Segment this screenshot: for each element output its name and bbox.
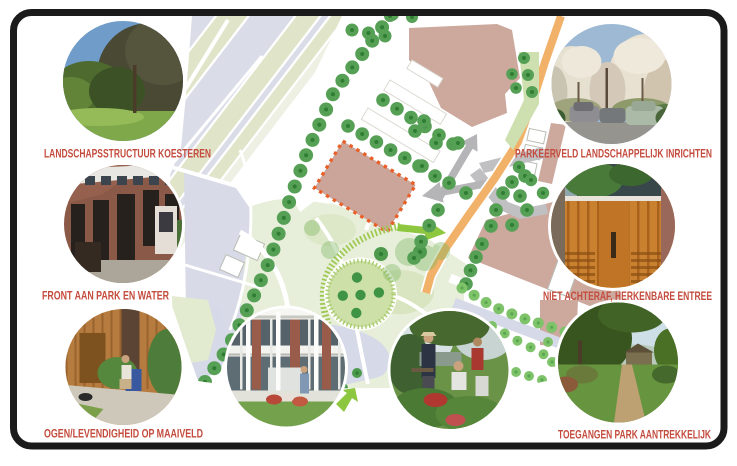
svg-text:NIET ACHTERAF, HERKENBARE ENTR: NIET ACHTERAF, HERKENBARE ENTREE <box>543 289 712 303</box>
svg-text:PARKEERVELD LANDSCHAPPELIJK IN: PARKEERVELD LANDSCHAPPELIJK INRICHTEN <box>515 147 712 161</box>
svg-text:FRONT AAN PARK EN WATER: FRONT AAN PARK EN WATER <box>42 289 169 303</box>
svg-text:TOEGANGEN PARK AANTREKKELIJK: TOEGANGEN PARK AANTREKKELIJK <box>558 428 711 442</box>
svg-text:OGEN/LEVENDIGHEID OP MAAIVELD: OGEN/LEVENDIGHEID OP MAAIVELD <box>44 427 203 441</box>
svg-text:LANDSCHAPSSTRUCTUUR KOESTEREN: LANDSCHAPSSTRUCTUUR KOESTEREN <box>44 147 211 161</box>
